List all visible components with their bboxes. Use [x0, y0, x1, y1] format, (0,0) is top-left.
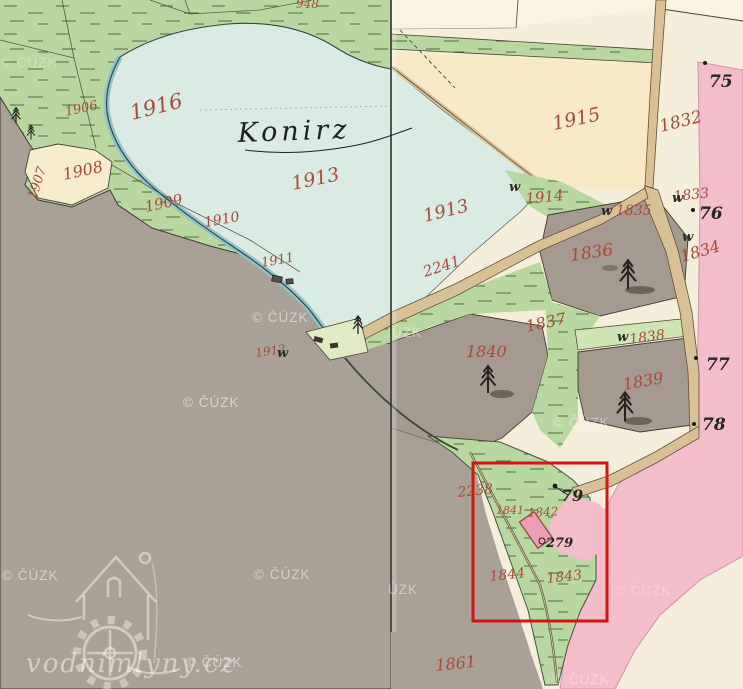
parcel-label-1841: 1841	[496, 504, 524, 517]
parcel-label-1835: 1835	[616, 203, 652, 219]
logo-text: vodnimlyny.cz	[26, 649, 236, 679]
parcel-label-948: 948	[296, 0, 319, 11]
landmark-label-279: 279	[545, 536, 573, 551]
meadow-mark-w: w	[617, 330, 629, 345]
watermark--zk: © ČÚZK	[1, 55, 57, 70]
parcel-label-1842: 1842	[527, 504, 558, 520]
landmark-label-78: 78	[702, 415, 726, 435]
building-symbol	[286, 279, 293, 285]
tree-shadow	[625, 286, 655, 294]
meadow-mark-w: w	[682, 230, 694, 245]
watermark--zk: ÚZK	[388, 582, 418, 597]
tree-shadow	[602, 265, 618, 271]
tree-shadow	[624, 417, 652, 425]
watermark--zk: © ČÚZK	[183, 395, 239, 410]
cadastral-map[interactable]: Konirz 191619061907190819091910191119121…	[0, 0, 743, 689]
cadastral-map-viewport[interactable]: Konirz 191619061907190819091910191119121…	[0, 0, 743, 689]
meadow-mark-w: w	[672, 191, 684, 206]
parcel-label-1840: 1840	[466, 342, 507, 361]
landmark-label-77: 77	[706, 355, 730, 375]
meadow-mark-w: w	[509, 180, 521, 195]
landmark-label-76: 76	[699, 204, 723, 224]
sheet-fold-band	[392, 0, 397, 632]
landmark-label-75: 75	[709, 72, 733, 92]
watermark--zk: © ČÚZK	[2, 568, 58, 583]
watermark--zk: © ČÚZK	[553, 672, 609, 687]
watermark--zk: © ČÚZK	[553, 415, 609, 430]
watermark--zk: ÚZK	[392, 325, 422, 340]
watermark--zk: © ČÚZK	[254, 567, 310, 582]
pond-name-label: Konirz	[236, 114, 351, 149]
watermark--zk: © ČÚZK	[252, 310, 308, 325]
landmark-label-79: 79	[561, 486, 583, 505]
tree-shadow	[490, 390, 514, 398]
meadow-mark-w: w	[601, 204, 613, 219]
meadow-mark-w: w	[277, 346, 289, 361]
watermark--zk: © ČÚZK	[615, 583, 671, 598]
